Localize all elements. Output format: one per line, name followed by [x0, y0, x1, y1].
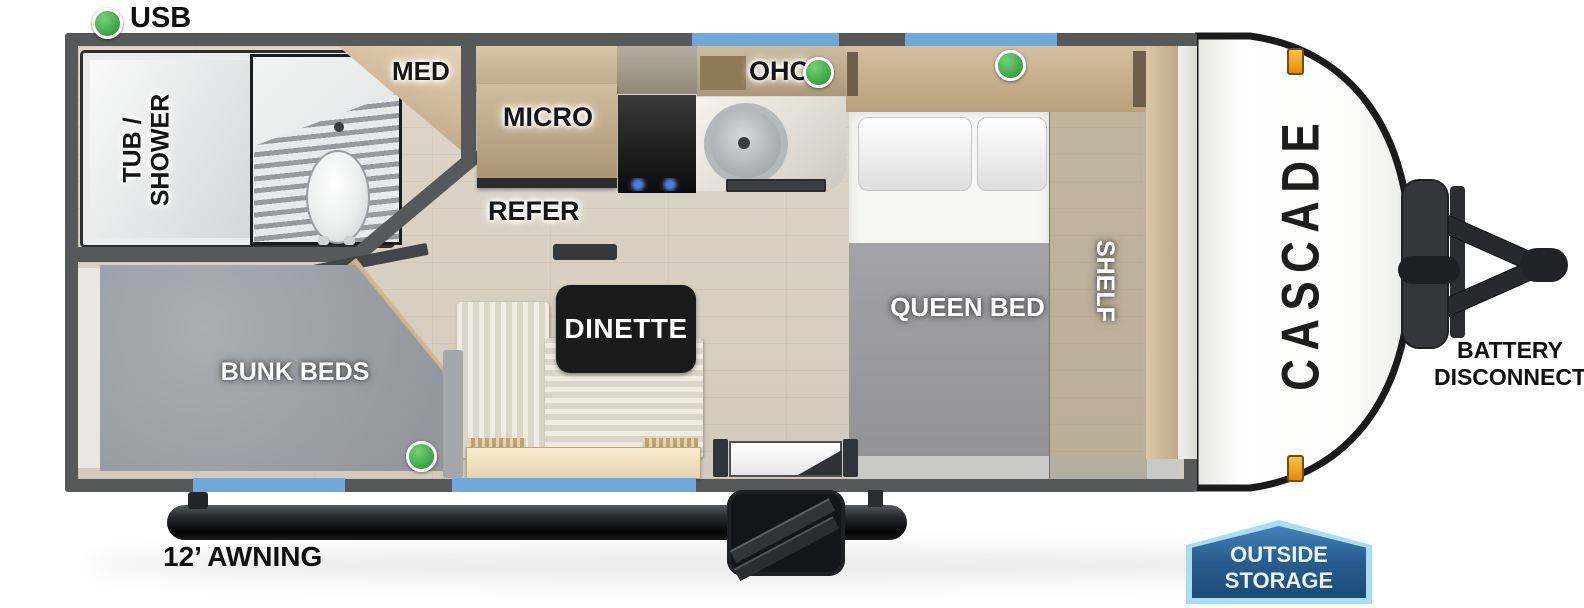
battery-line1: BATTERY: [1420, 337, 1584, 364]
floor-vent: [726, 179, 826, 192]
usb-indicator-icon: [995, 50, 1026, 81]
range-hood: [617, 46, 697, 94]
sink-drain: [738, 137, 750, 149]
window-bottom-left: [193, 478, 345, 492]
toilet: [306, 150, 370, 244]
headboard-cubby-left: [847, 52, 858, 96]
usb-indicator-icon: [803, 57, 834, 88]
awning-bracket: [188, 492, 208, 509]
bathroom-wall-vertical: [461, 46, 476, 158]
usb-legend-label: USB: [130, 2, 191, 35]
battery-disconnect-label: BATTERY DISCONNECT: [1420, 337, 1584, 391]
outside-storage-badge: OUTSIDE STORAGE: [1186, 520, 1372, 604]
queen-bed-label: QUEEN BED: [880, 292, 1055, 323]
tub-shower-label-box: TUB /SHOWER: [86, 60, 206, 240]
usb-indicator-icon: [92, 8, 123, 39]
marker-light-bottom: [1287, 455, 1304, 482]
stove-burner-right: [660, 178, 680, 191]
bathroom-wall-bottom: [65, 247, 363, 262]
brand-wordmark: CASCADE: [1271, 38, 1329, 468]
marker-light-top: [1287, 48, 1304, 75]
shelf-label: SHELF: [1090, 240, 1119, 322]
storage-line2: STORAGE: [1225, 568, 1333, 593]
stabilizer-bracket: [868, 490, 883, 507]
med-label: MED: [392, 56, 450, 87]
bed-blanket: [849, 243, 1049, 458]
window-bottom-right: [452, 478, 696, 492]
bedroom-side-panel: [1146, 46, 1178, 459]
usb-indicator-icon: [406, 441, 437, 472]
pillow-right: [977, 117, 1047, 191]
entry-door-frame-right: [843, 439, 858, 477]
outside-storage-badge-fill: OUTSIDE STORAGE: [1192, 526, 1366, 598]
toilet-foot-left: [318, 236, 329, 245]
hitch-tongue: [1398, 172, 1570, 360]
toilet-foot-right: [344, 236, 355, 245]
brand-text: CASCADE: [1269, 115, 1331, 391]
battery-line2: DISCONNECT: [1420, 364, 1584, 391]
micro-label: MICRO: [503, 102, 593, 133]
pillow-left: [858, 117, 972, 191]
refer-label: REFER: [488, 196, 580, 227]
wall-end-cap: [553, 244, 617, 260]
tub-shower-label: TUB /SHOWER: [118, 94, 174, 207]
dinette-label-box: DINETTE: [556, 285, 696, 373]
micro-cabinet: [477, 84, 617, 188]
dinette-side-cushion: [443, 350, 463, 478]
bunk-beds-label: BUNK BEDS: [215, 358, 375, 387]
dinette-table: [466, 447, 701, 479]
awning-label: 12’ AWNING: [163, 541, 322, 573]
entry-door-frame-left: [713, 439, 728, 477]
window-top-left: [692, 33, 839, 46]
overhead-cabinet-inset: [700, 56, 746, 90]
ohc-label: OHC: [749, 56, 809, 87]
front-inner-wall: [1178, 46, 1197, 459]
floorplan-canvas: TUB /SHOWER MED OHC MICRO REFER QUEEN BE…: [0, 0, 1584, 608]
shower-drain: [334, 122, 344, 132]
window-top-right: [905, 33, 1057, 46]
dinette-label: DINETTE: [564, 313, 687, 345]
storage-line1: OUTSIDE: [1230, 542, 1328, 567]
dinette-bench-back: [457, 302, 549, 458]
stove-burner-left: [628, 178, 648, 191]
